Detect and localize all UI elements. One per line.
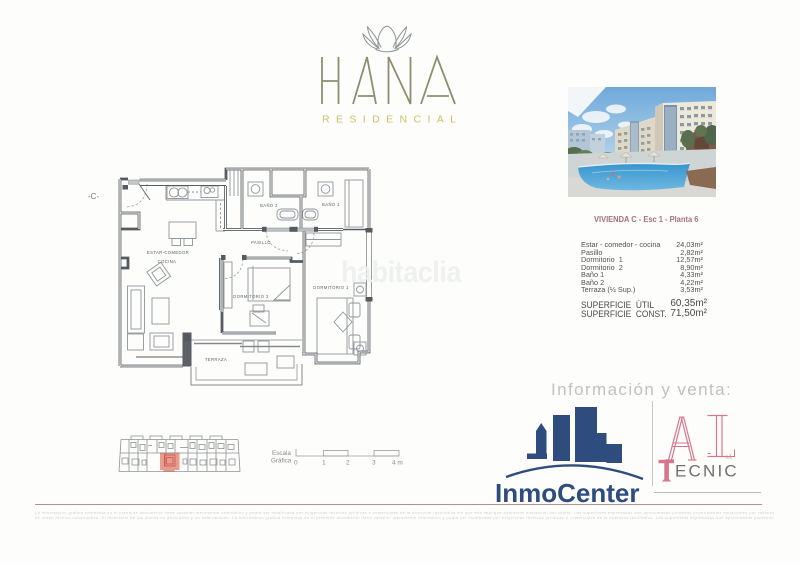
svg-text:ECNIC: ECNIC xyxy=(675,462,739,481)
svg-text:s.l.: s.l. xyxy=(726,455,734,461)
svg-text:BAÑO 2: BAÑO 2 xyxy=(260,203,278,208)
svg-text:4 m: 4 m xyxy=(392,460,403,467)
svg-text:DORMITORIO 2: DORMITORIO 2 xyxy=(233,294,269,299)
svg-text:BAÑO 1: BAÑO 1 xyxy=(322,202,340,207)
svg-text:Gráfica: Gráfica xyxy=(271,458,292,465)
svg-text:3: 3 xyxy=(372,460,376,467)
svg-text:PASILLO: PASILLO xyxy=(251,240,271,245)
svg-text:0: 0 xyxy=(294,460,298,467)
svg-text:RESIDENCIAL: RESIDENCIAL xyxy=(322,114,462,126)
svg-text:TERRAZA: TERRAZA xyxy=(205,357,227,362)
svg-text:COCINA: COCINA xyxy=(158,259,177,264)
svg-text:2: 2 xyxy=(346,460,350,467)
svg-text:1: 1 xyxy=(322,460,326,467)
svg-text:ESTAR-COMEDOR: ESTAR-COMEDOR xyxy=(147,250,189,255)
svg-text:Escala: Escala xyxy=(272,450,291,457)
